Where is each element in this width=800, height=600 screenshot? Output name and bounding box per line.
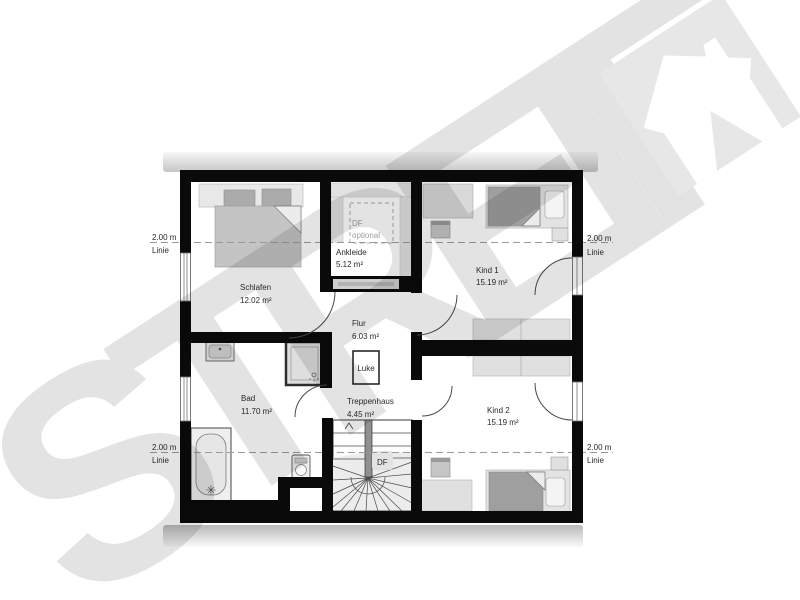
room-area-kind2: 15.19 m² bbox=[487, 418, 519, 427]
height-value-right-bottom: 2.00 m bbox=[587, 443, 612, 452]
winder-stairs-icon bbox=[333, 420, 412, 511]
height-label-left-bottom: Linie bbox=[152, 456, 169, 465]
height-value-left-bottom: 2.00 m bbox=[152, 443, 177, 452]
skylight-optional-line1: DF bbox=[352, 219, 363, 228]
double-bed-icon bbox=[199, 184, 303, 267]
floor-plan-drawing: Schlafen 12.02 m² Ankleide 5.12 m² Kind … bbox=[0, 0, 800, 600]
room-area-bad: 11.70 m² bbox=[241, 407, 272, 416]
roof-overhang-bottom bbox=[163, 525, 583, 547]
room-area-treppenhaus: 4.45 m² bbox=[347, 410, 374, 419]
room-area-schlafen: 12.02 m² bbox=[240, 296, 272, 305]
roof-overhang-top bbox=[163, 152, 598, 172]
room-area-flur: 6.03 m² bbox=[352, 332, 379, 341]
height-label-right-top: Linie bbox=[587, 248, 604, 257]
attic-hatch-label: Luke bbox=[357, 364, 375, 373]
skylight-optional-line2: optional bbox=[352, 231, 380, 240]
room-label-bad: Bad bbox=[241, 394, 255, 403]
stairs-skylight-label: DF bbox=[377, 458, 388, 467]
room-label-kind1: Kind 1 bbox=[476, 266, 499, 275]
room-label-kind2: Kind 2 bbox=[487, 406, 510, 415]
room-area-kind1: 15.19 m² bbox=[476, 278, 508, 287]
room-area-ankleide: 5.12 m² bbox=[336, 260, 363, 269]
kid2-bed-icon bbox=[486, 457, 570, 512]
shower-icon bbox=[286, 342, 323, 385]
kid1-desk-icon bbox=[423, 184, 473, 238]
bathtub-icon bbox=[191, 428, 231, 501]
toilet-icon bbox=[292, 455, 310, 478]
sink-icon bbox=[206, 342, 234, 361]
room-label-ankleide: Ankleide bbox=[336, 248, 367, 257]
floor-plan-page: Schlafen 12.02 m² Ankleide 5.12 m² Kind … bbox=[0, 0, 800, 600]
height-value-left-top: 2.00 m bbox=[152, 233, 177, 242]
kid1-bed-icon bbox=[486, 185, 568, 241]
height-label-right-bottom: Linie bbox=[587, 456, 604, 465]
kid2-desk-icon bbox=[421, 458, 472, 511]
height-label-left-top: Linie bbox=[152, 246, 169, 255]
kid1-sideboard-icon bbox=[473, 319, 570, 340]
room-label-flur: Flur bbox=[352, 319, 366, 328]
height-value-right-top: 2.00 m bbox=[587, 234, 612, 243]
room-label-treppenhaus: Treppenhaus bbox=[347, 397, 394, 406]
kid2-sideboard-icon bbox=[473, 356, 570, 376]
room-label-schlafen: Schlafen bbox=[240, 283, 271, 292]
sliding-door-panel bbox=[333, 279, 399, 289]
